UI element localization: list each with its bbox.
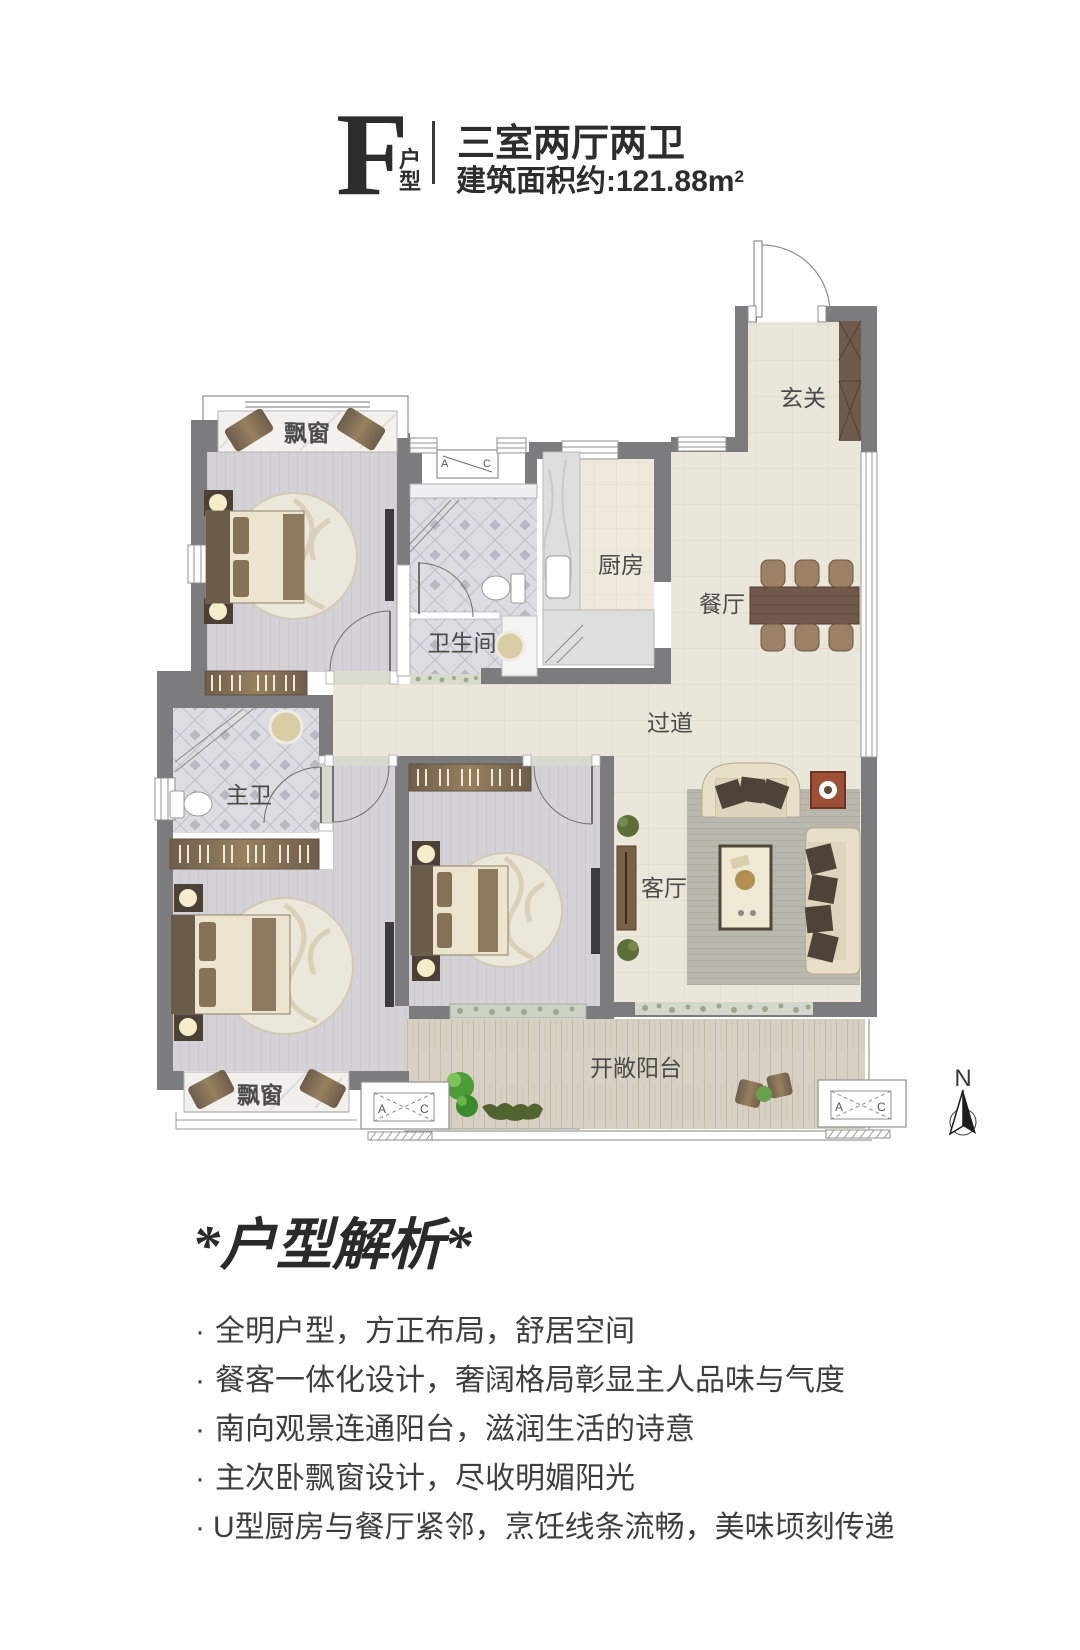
svg-text:飘窗: 飘窗 <box>237 1082 283 1108</box>
svg-text:卫生间: 卫生间 <box>428 630 497 656</box>
svg-text:A: A <box>441 458 449 470</box>
svg-text:厨房: 厨房 <box>598 552 644 578</box>
svg-text:过道: 过道 <box>647 710 693 736</box>
svg-text:A: A <box>835 1100 843 1114</box>
svg-text:客厅: 客厅 <box>641 875 687 901</box>
svg-text:A: A <box>378 1102 386 1116</box>
svg-text:C: C <box>483 458 491 470</box>
svg-text:C: C <box>877 1100 886 1114</box>
svg-text:玄关: 玄关 <box>780 385 826 411</box>
svg-text:开敞阳台: 开敞阳台 <box>590 1055 682 1081</box>
svg-text:N: N <box>954 1065 971 1092</box>
svg-text:餐厅: 餐厅 <box>699 591 745 617</box>
svg-text:飘窗: 飘窗 <box>284 420 330 446</box>
svg-text:主卫: 主卫 <box>226 782 272 808</box>
svg-text:C: C <box>420 1102 429 1116</box>
